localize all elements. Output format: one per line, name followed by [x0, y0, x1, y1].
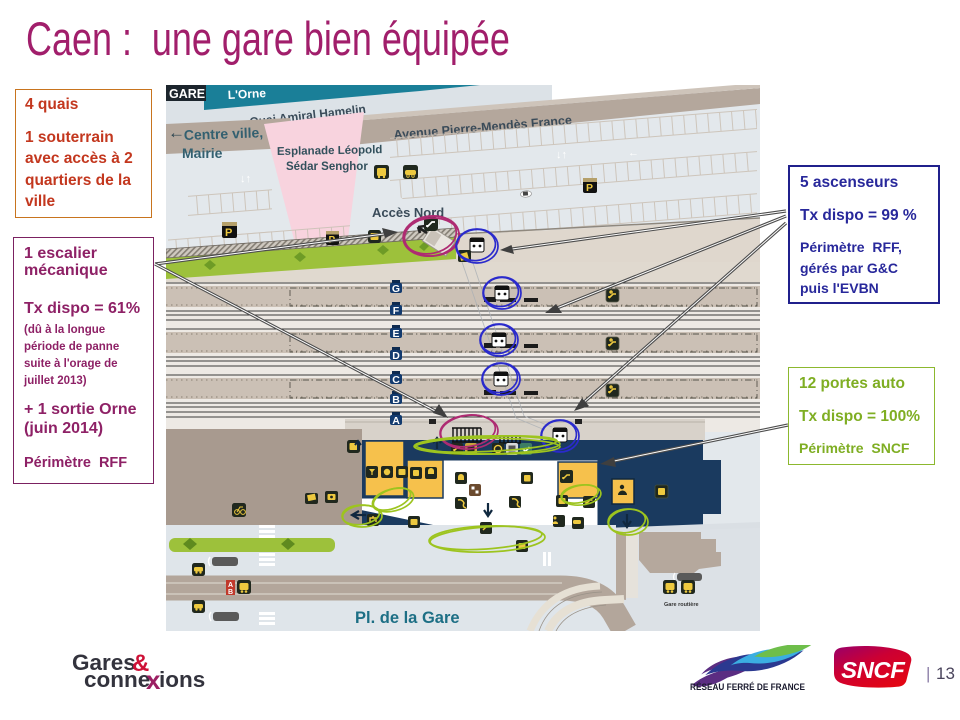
svg-text:Mairie: Mairie [182, 145, 223, 161]
svg-text:Gare routière: Gare routière [664, 602, 699, 608]
svg-text:C: C [392, 374, 400, 386]
svg-text:G: G [392, 283, 400, 295]
svg-text:SNCF: SNCF [841, 658, 905, 684]
svg-text:ions: ions [159, 667, 205, 692]
svg-text:A: A [228, 582, 233, 589]
svg-text:↓↑: ↓↑ [240, 173, 251, 185]
svg-text:Pl. de la Gare: Pl. de la Gare [355, 609, 460, 627]
svg-text:←: ← [628, 147, 639, 159]
svg-text:P: P [586, 182, 593, 194]
svg-text:Esplanade Léopold: Esplanade Léopold [277, 144, 383, 158]
svg-text:B: B [228, 589, 233, 596]
svg-text:B: B [392, 394, 400, 406]
svg-text:A: A [392, 415, 400, 427]
svg-text:D: D [392, 350, 400, 362]
svg-text:↓↑: ↓↑ [556, 149, 567, 161]
svg-text:Sédar Senghor: Sédar Senghor [286, 161, 368, 173]
svg-text:F: F [393, 305, 400, 317]
svg-text:P: P [225, 227, 232, 239]
svg-text:Centre ville,: Centre ville, [184, 124, 264, 143]
svg-text:E: E [392, 328, 399, 340]
svg-text:conne: conne [84, 667, 150, 692]
svg-text:L'Orne: L'Orne [227, 86, 266, 102]
svg-text:GARE: GARE [169, 87, 205, 101]
svg-text:RÉSEAU FERRÉ DE FRANCE: RÉSEAU FERRÉ DE FRANCE [690, 682, 805, 692]
svg-text:←: ← [168, 123, 185, 142]
